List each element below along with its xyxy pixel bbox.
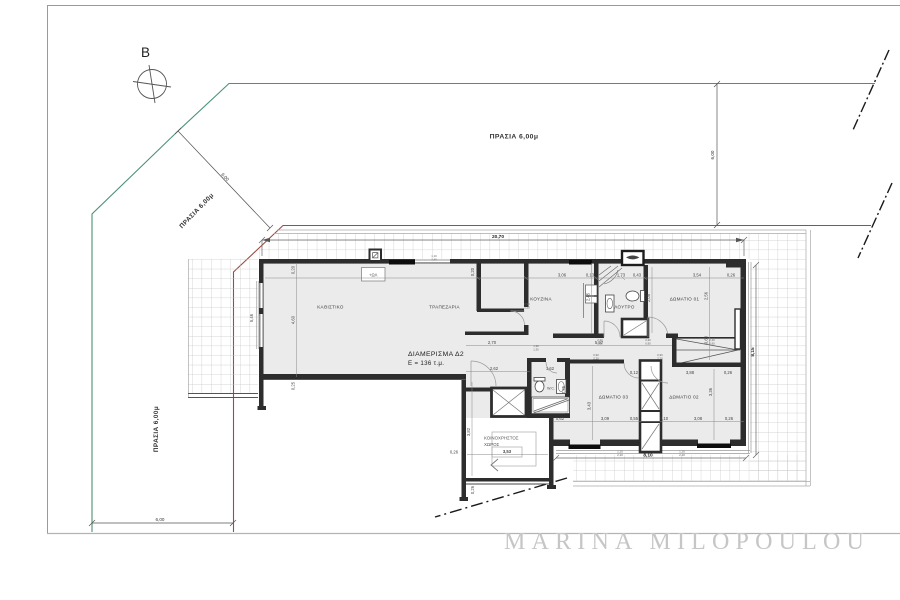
svg-text:ΔΩΜΑΤΙΟ 01: ΔΩΜΑΤΙΟ 01 <box>670 297 700 302</box>
svg-text:20,70: 20,70 <box>492 234 504 240</box>
svg-text:6,00: 6,00 <box>710 150 715 159</box>
svg-text:0,90: 0,90 <box>709 342 715 346</box>
svg-text:ΔΩΜΑΤΙΟ 03: ΔΩΜΑΤΙΟ 03 <box>599 395 629 400</box>
svg-text:3,09: 3,09 <box>601 416 610 421</box>
svg-text:ΔΩΜΑΤΙΟ 02: ΔΩΜΑΤΙΟ 02 <box>669 395 699 400</box>
svg-text:0,12: 0,12 <box>630 370 639 375</box>
svg-text:0,26: 0,26 <box>727 273 736 278</box>
svg-text:4,60: 4,60 <box>291 315 296 324</box>
svg-text:ΠΡΑΣΙΑ 6,00μ: ΠΡΑΣΙΑ 6,00μ <box>490 134 539 141</box>
svg-text:W.C.: W.C. <box>547 387 555 391</box>
svg-text:5,46: 5,46 <box>249 313 254 322</box>
svg-text:2,20: 2,20 <box>593 357 599 361</box>
svg-text:0,26: 0,26 <box>725 416 734 421</box>
svg-text:1,62: 1,62 <box>546 366 555 371</box>
svg-text:0,60: 0,60 <box>704 335 709 344</box>
svg-text:3,82: 3,82 <box>466 427 471 436</box>
svg-text:0,90: 0,90 <box>645 342 651 346</box>
svg-text:1,40: 1,40 <box>431 258 437 262</box>
svg-text:0,55: 0,55 <box>630 416 639 421</box>
svg-text:0,26: 0,26 <box>470 485 475 494</box>
svg-text:0,43: 0,43 <box>633 273 642 278</box>
svg-text:ΚΑΘΙΣΤΙΚΟ: ΚΑΘΙΣΤΙΚΟ <box>317 305 344 310</box>
svg-text:ΠΡΑΣΙΑ 6,00μ: ΠΡΑΣΙΑ 6,00μ <box>178 192 215 230</box>
svg-text:0,20: 0,20 <box>291 265 296 274</box>
svg-text:0,62: 0,62 <box>556 416 565 421</box>
svg-text:3,08: 3,08 <box>694 416 703 421</box>
svg-text:ΧΩΡΟΣ: ΧΩΡΟΣ <box>484 442 500 447</box>
svg-text:2,62: 2,62 <box>490 366 499 371</box>
svg-text:2,05: 2,05 <box>646 293 651 302</box>
svg-text:0,13: 0,13 <box>586 273 595 278</box>
svg-text:ΤΡΑΠΕΖΑΡΙΑ: ΤΡΑΠΕΖΑΡΙΑ <box>429 305 460 310</box>
svg-text:3,54: 3,54 <box>693 273 702 278</box>
svg-text:ΔΙΑΜΕΡΙΣΜΑ Δ2: ΔΙΑΜΕΡΙΣΜΑ Δ2 <box>408 351 464 358</box>
svg-text:6,00: 6,00 <box>156 517 165 522</box>
svg-text:ΠΡΑΣΙΑ 6,00μ: ΠΡΑΣΙΑ 6,00μ <box>153 406 160 452</box>
svg-text:0,25: 0,25 <box>291 381 296 390</box>
svg-text:MARINA MILOPOULOU: MARINA MILOPOULOU <box>504 529 870 555</box>
svg-text:3,53: 3,53 <box>503 449 512 454</box>
svg-text:0,26: 0,26 <box>450 450 459 455</box>
svg-text:2,56: 2,56 <box>704 291 709 300</box>
svg-text:2,45: 2,45 <box>586 292 591 301</box>
svg-text:0,26: 0,26 <box>724 370 733 375</box>
svg-text:ΛΟΥΤΡΟ: ΛΟΥΤΡΟ <box>614 305 635 310</box>
svg-text:2,20: 2,20 <box>617 453 623 457</box>
svg-text:E = 136 τ.μ.: E = 136 τ.μ. <box>408 360 444 367</box>
svg-text:1,73: 1,73 <box>617 273 626 278</box>
svg-text:3,43: 3,43 <box>587 401 592 410</box>
svg-text:2,70: 2,70 <box>488 340 497 345</box>
svg-text:ΚΟΥΖΙΝΑ: ΚΟΥΖΙΝΑ <box>530 297 552 302</box>
svg-text:3,88: 3,88 <box>686 370 695 375</box>
svg-text:2,20: 2,20 <box>524 306 530 310</box>
svg-text:2,20: 2,20 <box>657 357 663 361</box>
svg-text:+ΩΛ: +ΩΛ <box>369 273 378 278</box>
svg-text:3,06: 3,06 <box>558 273 567 278</box>
svg-text:B: B <box>141 45 150 60</box>
svg-text:0,20: 0,20 <box>470 267 475 276</box>
svg-text:3,36: 3,36 <box>708 387 713 396</box>
svg-text:2,20: 2,20 <box>679 453 685 457</box>
svg-text:1,30: 1,30 <box>533 348 539 352</box>
svg-text:8,10: 8,10 <box>643 453 653 459</box>
svg-text:ΚΟΙΝΟΧΡΗΣΤΟΣ: ΚΟΙΝΟΧΡΗΣΤΟΣ <box>484 436 519 441</box>
svg-text:0,10: 0,10 <box>660 416 669 421</box>
svg-text:2,35: 2,35 <box>561 385 566 394</box>
svg-text:1,00: 1,00 <box>597 342 603 346</box>
